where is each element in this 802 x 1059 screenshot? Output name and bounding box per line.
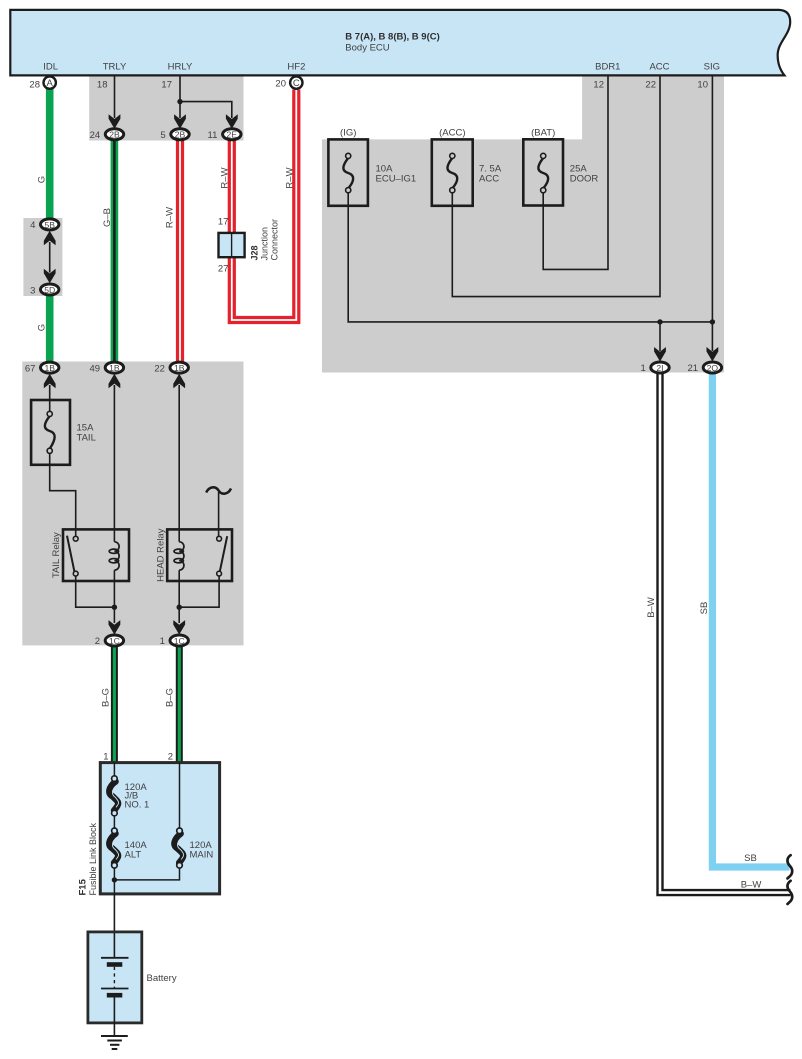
svg-text:G–B: G–B <box>102 208 113 227</box>
svg-text:ALT: ALT <box>125 850 142 861</box>
svg-text:B–W: B–W <box>741 879 762 890</box>
svg-text:1B: 1B <box>109 363 120 373</box>
svg-text:B–G: B–G <box>165 688 176 707</box>
svg-text:Fusible Link Block: Fusible Link Block <box>88 822 98 895</box>
svg-text:J28: J28 <box>250 245 260 260</box>
svg-text:A: A <box>47 78 54 89</box>
svg-text:B–W: B–W <box>646 597 657 618</box>
svg-text:HF2: HF2 <box>287 62 305 73</box>
svg-text:1C: 1C <box>174 636 185 646</box>
svg-text:2I: 2I <box>656 363 663 373</box>
svg-text:1C: 1C <box>109 636 120 646</box>
svg-text:12: 12 <box>593 79 604 90</box>
svg-text:HEAD Relay: HEAD Relay <box>156 528 167 582</box>
svg-text:3: 3 <box>30 285 35 296</box>
svg-text:4: 4 <box>30 220 35 231</box>
svg-text:Junction: Junction <box>260 227 270 261</box>
svg-text:G: G <box>37 324 48 331</box>
svg-text:2Q: 2Q <box>707 363 719 373</box>
svg-text:B–G: B–G <box>101 688 112 707</box>
svg-text:Connector: Connector <box>270 219 280 261</box>
svg-text:BDR1: BDR1 <box>595 62 620 73</box>
svg-text:1B: 1B <box>44 363 55 373</box>
svg-text:ACC: ACC <box>649 62 669 73</box>
svg-text:22: 22 <box>645 79 656 90</box>
svg-text:2B: 2B <box>175 130 186 140</box>
svg-text:SB: SB <box>699 602 710 615</box>
svg-text:NO. 1: NO. 1 <box>125 800 150 811</box>
svg-text:5B: 5B <box>44 220 55 230</box>
svg-text:TRLY: TRLY <box>103 62 127 73</box>
svg-text:2E: 2E <box>227 130 238 140</box>
svg-text:ACC: ACC <box>479 174 499 185</box>
svg-text:Battery: Battery <box>147 973 177 984</box>
svg-text:HRLY: HRLY <box>168 62 193 73</box>
svg-text:(IG): (IG) <box>340 128 356 139</box>
svg-text:1: 1 <box>641 363 646 374</box>
svg-text:5: 5 <box>160 130 165 141</box>
svg-text:SIG: SIG <box>704 62 720 73</box>
svg-text:TAIL Relay: TAIL Relay <box>51 532 62 578</box>
svg-text:2: 2 <box>168 752 173 763</box>
svg-text:11: 11 <box>208 130 218 141</box>
svg-text:2: 2 <box>95 636 100 647</box>
svg-text:Body ECU: Body ECU <box>345 43 389 54</box>
svg-text:TAIL: TAIL <box>77 433 96 444</box>
svg-text:C: C <box>293 78 300 89</box>
svg-text:24: 24 <box>90 130 101 141</box>
svg-text:10: 10 <box>697 79 708 90</box>
svg-text:49: 49 <box>90 363 101 374</box>
svg-text:(ACC): (ACC) <box>439 128 465 139</box>
svg-text:5D: 5D <box>44 285 55 295</box>
svg-text:2B: 2B <box>109 130 120 140</box>
svg-text:22: 22 <box>154 363 165 374</box>
svg-text:SB: SB <box>744 853 757 864</box>
svg-text:G: G <box>37 176 48 183</box>
svg-text:20: 20 <box>275 78 286 89</box>
svg-text:67: 67 <box>25 363 36 374</box>
svg-text:R–W: R–W <box>165 207 176 228</box>
svg-text:1: 1 <box>160 636 165 647</box>
svg-text:IDL: IDL <box>43 62 58 73</box>
svg-text:R–W: R–W <box>220 167 231 188</box>
svg-text:18: 18 <box>97 79 108 90</box>
svg-text:1B: 1B <box>174 363 185 373</box>
svg-text:21: 21 <box>688 363 699 374</box>
svg-text:28: 28 <box>29 79 40 90</box>
svg-text:B 7(A), B 8(B), B 9(C): B 7(A), B 8(B), B 9(C) <box>345 32 439 43</box>
svg-text:R–W: R–W <box>285 167 296 188</box>
svg-text:1: 1 <box>103 752 108 763</box>
svg-text:ECU–IG1: ECU–IG1 <box>376 174 417 185</box>
svg-text:DOOR: DOOR <box>570 174 599 185</box>
svg-text:(BAT): (BAT) <box>531 128 555 139</box>
svg-text:F15: F15 <box>78 878 89 895</box>
svg-text:MAIN: MAIN <box>190 850 214 861</box>
svg-text:27: 27 <box>218 264 229 275</box>
svg-text:17: 17 <box>218 217 229 228</box>
svg-text:17: 17 <box>161 79 172 90</box>
